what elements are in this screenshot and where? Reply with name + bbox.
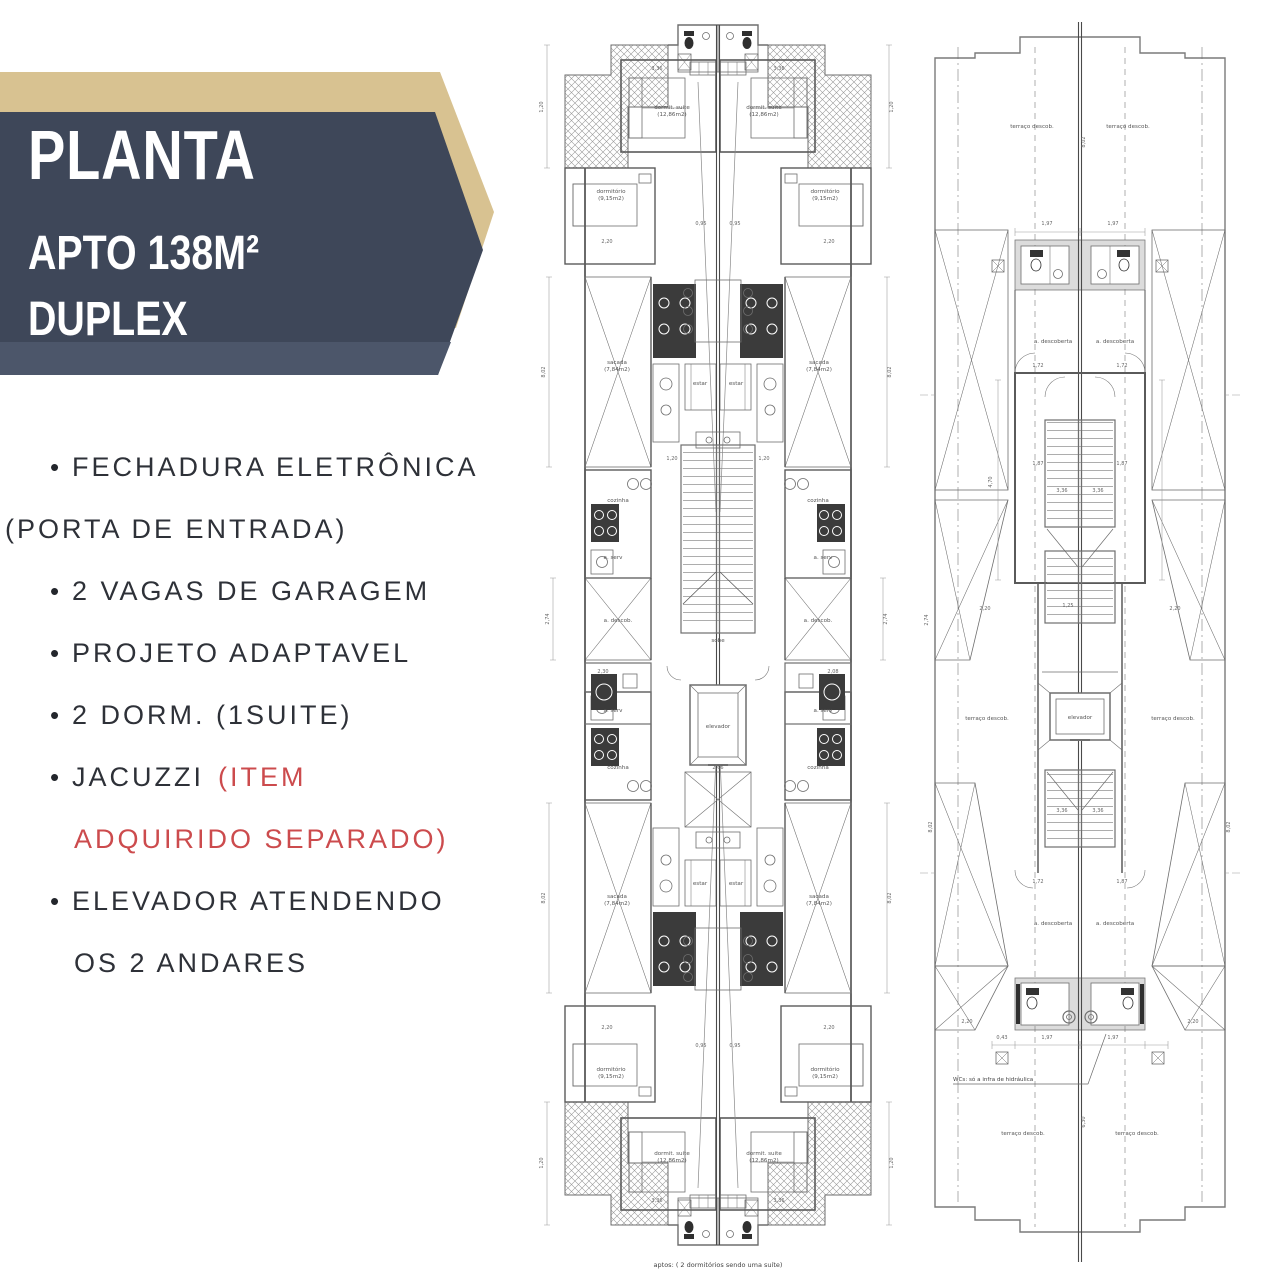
svg-text:8,02: 8,02 xyxy=(887,366,893,377)
svg-text:3,36: 3,36 xyxy=(1092,488,1103,494)
svg-text:dormitório: dormitório xyxy=(810,1066,840,1073)
bath-cores xyxy=(1015,240,1145,1030)
feature-bedrooms-label: 2 DORM. (1SUITE) xyxy=(72,700,353,731)
svg-text:terraço descob.: terraço descob. xyxy=(1151,716,1195,722)
svg-text:a. serv: a. serv xyxy=(814,555,834,561)
svg-text:8,02: 8,02 xyxy=(887,892,893,903)
svg-text:cozinha: cozinha xyxy=(807,498,829,504)
svg-text:1,87: 1,87 xyxy=(1116,461,1127,467)
svg-text:1,20: 1,20 xyxy=(758,456,769,462)
apartment-floor-plan: dormit. suite(12,86m2)dormit. suite(12,8… xyxy=(533,12,908,1274)
svg-text:8,02: 8,02 xyxy=(928,821,934,832)
svg-text:2,74: 2,74 xyxy=(924,614,930,625)
feature-lock-label: FECHADURA ELETRÔNICA xyxy=(72,452,479,483)
feature-elevator-cont: OS 2 ANDARES xyxy=(0,932,528,994)
svg-text:0,95: 0,95 xyxy=(695,221,706,227)
svg-text:4,70: 4,70 xyxy=(988,476,994,487)
svg-text:(7,84m2): (7,84m2) xyxy=(806,367,832,373)
svg-text:dormit. suite: dormit. suite xyxy=(654,1151,690,1157)
terrace-plan-structure xyxy=(920,22,1240,1262)
feature-jacuzzi-cont: ADQUIRIDO SEPARADO) xyxy=(0,808,528,870)
feature-jacuzzi-note2: ADQUIRIDO SEPARADO) xyxy=(74,824,449,855)
svg-text:2,74: 2,74 xyxy=(883,613,889,624)
title-banner: PLANTA APTO 138M² DUPLEX xyxy=(0,70,520,382)
svg-text:sacada: sacada xyxy=(809,360,829,366)
feature-jacuzzi-label: JACUZZI xyxy=(72,762,204,793)
bullet-icon: • xyxy=(50,452,72,483)
svg-text:(9,15m2): (9,15m2) xyxy=(812,196,838,202)
feature-garage: • 2 VAGAS DE GARAGEM xyxy=(0,560,528,622)
svg-text:a. descoberta: a. descoberta xyxy=(1096,921,1134,927)
svg-text:1,97: 1,97 xyxy=(1107,1035,1118,1041)
feature-lock-label2: (PORTA DE ENTRADA) xyxy=(5,514,348,545)
dim-lines xyxy=(992,228,1168,1049)
feature-list: • FECHADURA ELETRÔNICA (PORTA DE ENTRADA… xyxy=(0,436,528,994)
svg-text:1,20: 1,20 xyxy=(666,456,677,462)
svg-text:1,25: 1,25 xyxy=(1062,603,1073,609)
svg-text:1,87: 1,87 xyxy=(1116,879,1127,885)
svg-text:(7,84m2): (7,84m2) xyxy=(604,367,630,373)
svg-text:2,20: 2,20 xyxy=(823,1025,834,1031)
svg-text:dormitório: dormitório xyxy=(596,188,626,195)
svg-text:estar: estar xyxy=(693,881,708,887)
svg-text:1,20: 1,20 xyxy=(889,1157,895,1168)
svg-text:a. descob.: a. descob. xyxy=(804,618,833,624)
central-stair-core xyxy=(953,22,1168,1262)
svg-text:(12,86m2): (12,86m2) xyxy=(657,112,686,118)
bullet-icon: • xyxy=(50,886,72,917)
svg-text:(9,15m2): (9,15m2) xyxy=(598,196,624,202)
svg-text:(12,86m2): (12,86m2) xyxy=(749,1158,778,1164)
svg-text:8,02: 8,02 xyxy=(541,892,547,903)
svg-text:a. descoberta: a. descoberta xyxy=(1096,339,1134,345)
feature-lock: • FECHADURA ELETRÔNICA xyxy=(0,436,528,498)
svg-text:1,97: 1,97 xyxy=(1041,1035,1052,1041)
svg-text:2,74: 2,74 xyxy=(545,613,551,624)
svg-text:3,36: 3,36 xyxy=(773,1198,784,1204)
hall-door-arcs xyxy=(667,666,769,680)
svg-text:2,20: 2,20 xyxy=(601,239,612,245)
banner-title: PLANTA xyxy=(28,118,256,192)
floor-plan-structure xyxy=(544,25,892,1245)
sideboard-lower xyxy=(696,832,740,848)
svg-text:8,02: 8,02 xyxy=(1081,136,1087,147)
central-core xyxy=(667,25,769,1245)
feature-jacuzzi: • JACUZZI (ITEM xyxy=(0,746,528,808)
svg-text:0,95: 0,95 xyxy=(729,1043,740,1049)
svg-text:2,20: 2,20 xyxy=(601,1025,612,1031)
banner-subtitle2: DUPLEX xyxy=(28,294,261,346)
upper-stair xyxy=(1045,377,1115,567)
svg-text:a. descob.: a. descob. xyxy=(604,618,633,624)
feature-jacuzzi-note1: (ITEM xyxy=(218,762,307,793)
svg-text:cozinha: cozinha xyxy=(607,498,629,504)
svg-text:(9,15m2): (9,15m2) xyxy=(598,1074,624,1080)
svg-text:8,02: 8,02 xyxy=(1226,821,1232,832)
svg-text:sobe: sobe xyxy=(711,638,725,644)
svg-text:a. serv: a. serv xyxy=(604,708,624,714)
bathroom-note: WCs: só a infra de hidráulica xyxy=(953,1076,1033,1083)
svg-text:sacada: sacada xyxy=(809,894,829,900)
terrace-plan: terraço descob.terraço descob.a. descobe… xyxy=(920,22,1275,1267)
svg-text:3,36: 3,36 xyxy=(651,66,662,72)
svg-text:estar: estar xyxy=(693,381,708,387)
svg-text:dormitório: dormitório xyxy=(596,1066,626,1073)
svg-text:sacada: sacada xyxy=(607,360,627,366)
svg-text:terraço descob.: terraço descob. xyxy=(965,716,1009,722)
svg-text:2,20: 2,20 xyxy=(961,1019,972,1025)
svg-text:a. serv: a. serv xyxy=(814,708,834,714)
svg-text:a. descoberta: a. descoberta xyxy=(1034,339,1072,345)
feature-adaptable: • PROJETO ADAPTAVEL xyxy=(0,622,528,684)
svg-text:1,20: 1,20 xyxy=(889,101,895,112)
void-arrows xyxy=(698,82,738,1188)
svg-text:a. serv: a. serv xyxy=(604,555,624,561)
svg-text:2,20: 2,20 xyxy=(1169,606,1180,612)
svg-text:(12,86m2): (12,86m2) xyxy=(657,1158,686,1164)
svg-text:(12,86m2): (12,86m2) xyxy=(749,112,778,118)
feature-adaptable-label: PROJETO ADAPTAVEL xyxy=(72,638,411,669)
svg-text:1,72: 1,72 xyxy=(1116,363,1127,369)
sideboard-upper xyxy=(696,432,740,448)
svg-text:terraço descob.: terraço descob. xyxy=(1115,1131,1159,1137)
svg-text:a. descoberta: a. descoberta xyxy=(1034,921,1072,927)
svg-text:(9,15m2): (9,15m2) xyxy=(812,1074,838,1080)
svg-text:terraço descob.: terraço descob. xyxy=(1106,124,1150,130)
svg-text:3,36: 3,36 xyxy=(651,1198,662,1204)
staircase xyxy=(681,445,755,633)
svg-text:terraço descob.: terraço descob. xyxy=(1010,124,1054,130)
svg-text:estar: estar xyxy=(729,381,744,387)
svg-text:1,20: 1,20 xyxy=(539,101,545,112)
svg-text:0,95: 0,95 xyxy=(729,221,740,227)
stair-void-lower xyxy=(685,772,751,827)
feature-lock-cont: (PORTA DE ENTRADA) xyxy=(0,498,528,560)
svg-text:1,97: 1,97 xyxy=(1107,221,1118,227)
feature-elevator: • ELEVADOR ATENDENDO xyxy=(0,870,528,932)
svg-text:8,02: 8,02 xyxy=(541,366,547,377)
svg-text:sacada: sacada xyxy=(607,894,627,900)
svg-text:2,20: 2,20 xyxy=(823,239,834,245)
svg-text:3,36: 3,36 xyxy=(1056,488,1067,494)
svg-text:1,20: 1,20 xyxy=(539,1157,545,1168)
svg-text:elevador: elevador xyxy=(1068,715,1093,721)
svg-text:1,72: 1,72 xyxy=(1032,879,1043,885)
svg-text:dormit. suite: dormit. suite xyxy=(654,105,690,111)
bullet-icon: • xyxy=(50,638,72,669)
svg-text:estar: estar xyxy=(729,881,744,887)
feature-elevator-label2: OS 2 ANDARES xyxy=(74,948,308,979)
bullet-icon: • xyxy=(50,576,72,607)
bullet-icon: • xyxy=(50,762,72,793)
svg-text:(7,84m2): (7,84m2) xyxy=(806,901,832,907)
svg-text:1,87: 1,87 xyxy=(1032,461,1043,467)
svg-text:dormit. suite: dormit. suite xyxy=(746,105,782,111)
svg-text:1,97: 1,97 xyxy=(1041,221,1052,227)
svg-text:3,36: 3,36 xyxy=(773,66,784,72)
svg-text:2,20: 2,20 xyxy=(1187,1019,1198,1025)
svg-text:2,30: 2,30 xyxy=(597,669,608,675)
svg-text:elevador: elevador xyxy=(706,724,731,730)
svg-text:2,66: 2,66 xyxy=(712,765,723,771)
banner-subtitle: APTO 138M² xyxy=(28,228,261,280)
svg-text:cozinha: cozinha xyxy=(807,765,829,771)
svg-text:cozinha: cozinha xyxy=(607,765,629,771)
svg-text:3,36: 3,36 xyxy=(1056,808,1067,814)
svg-text:6,30: 6,30 xyxy=(1081,1116,1087,1127)
svg-text:(7,84m2): (7,84m2) xyxy=(604,901,630,907)
feature-elevator-label: ELEVADOR ATENDENDO xyxy=(72,886,445,917)
svg-text:2,20: 2,20 xyxy=(979,606,990,612)
feature-bedrooms: • 2 DORM. (1SUITE) xyxy=(0,684,528,746)
plan-caption: aptos: ( 2 dormitórios sendo uma suíte) xyxy=(654,1261,783,1269)
svg-text:0,43: 0,43 xyxy=(996,1035,1007,1041)
svg-text:0,95: 0,95 xyxy=(695,1043,706,1049)
svg-text:1,72: 1,72 xyxy=(1032,363,1043,369)
mid-stair xyxy=(1042,551,1118,672)
svg-text:terraço descob.: terraço descob. xyxy=(1001,1131,1045,1137)
feature-garage-label: 2 VAGAS DE GARAGEM xyxy=(72,576,430,607)
svg-text:dormitório: dormitório xyxy=(810,188,840,195)
svg-text:3,36: 3,36 xyxy=(1092,808,1103,814)
svg-text:dormit. suite: dormit. suite xyxy=(746,1151,782,1157)
svg-text:2,08: 2,08 xyxy=(827,669,838,675)
bullet-icon: • xyxy=(50,700,72,731)
